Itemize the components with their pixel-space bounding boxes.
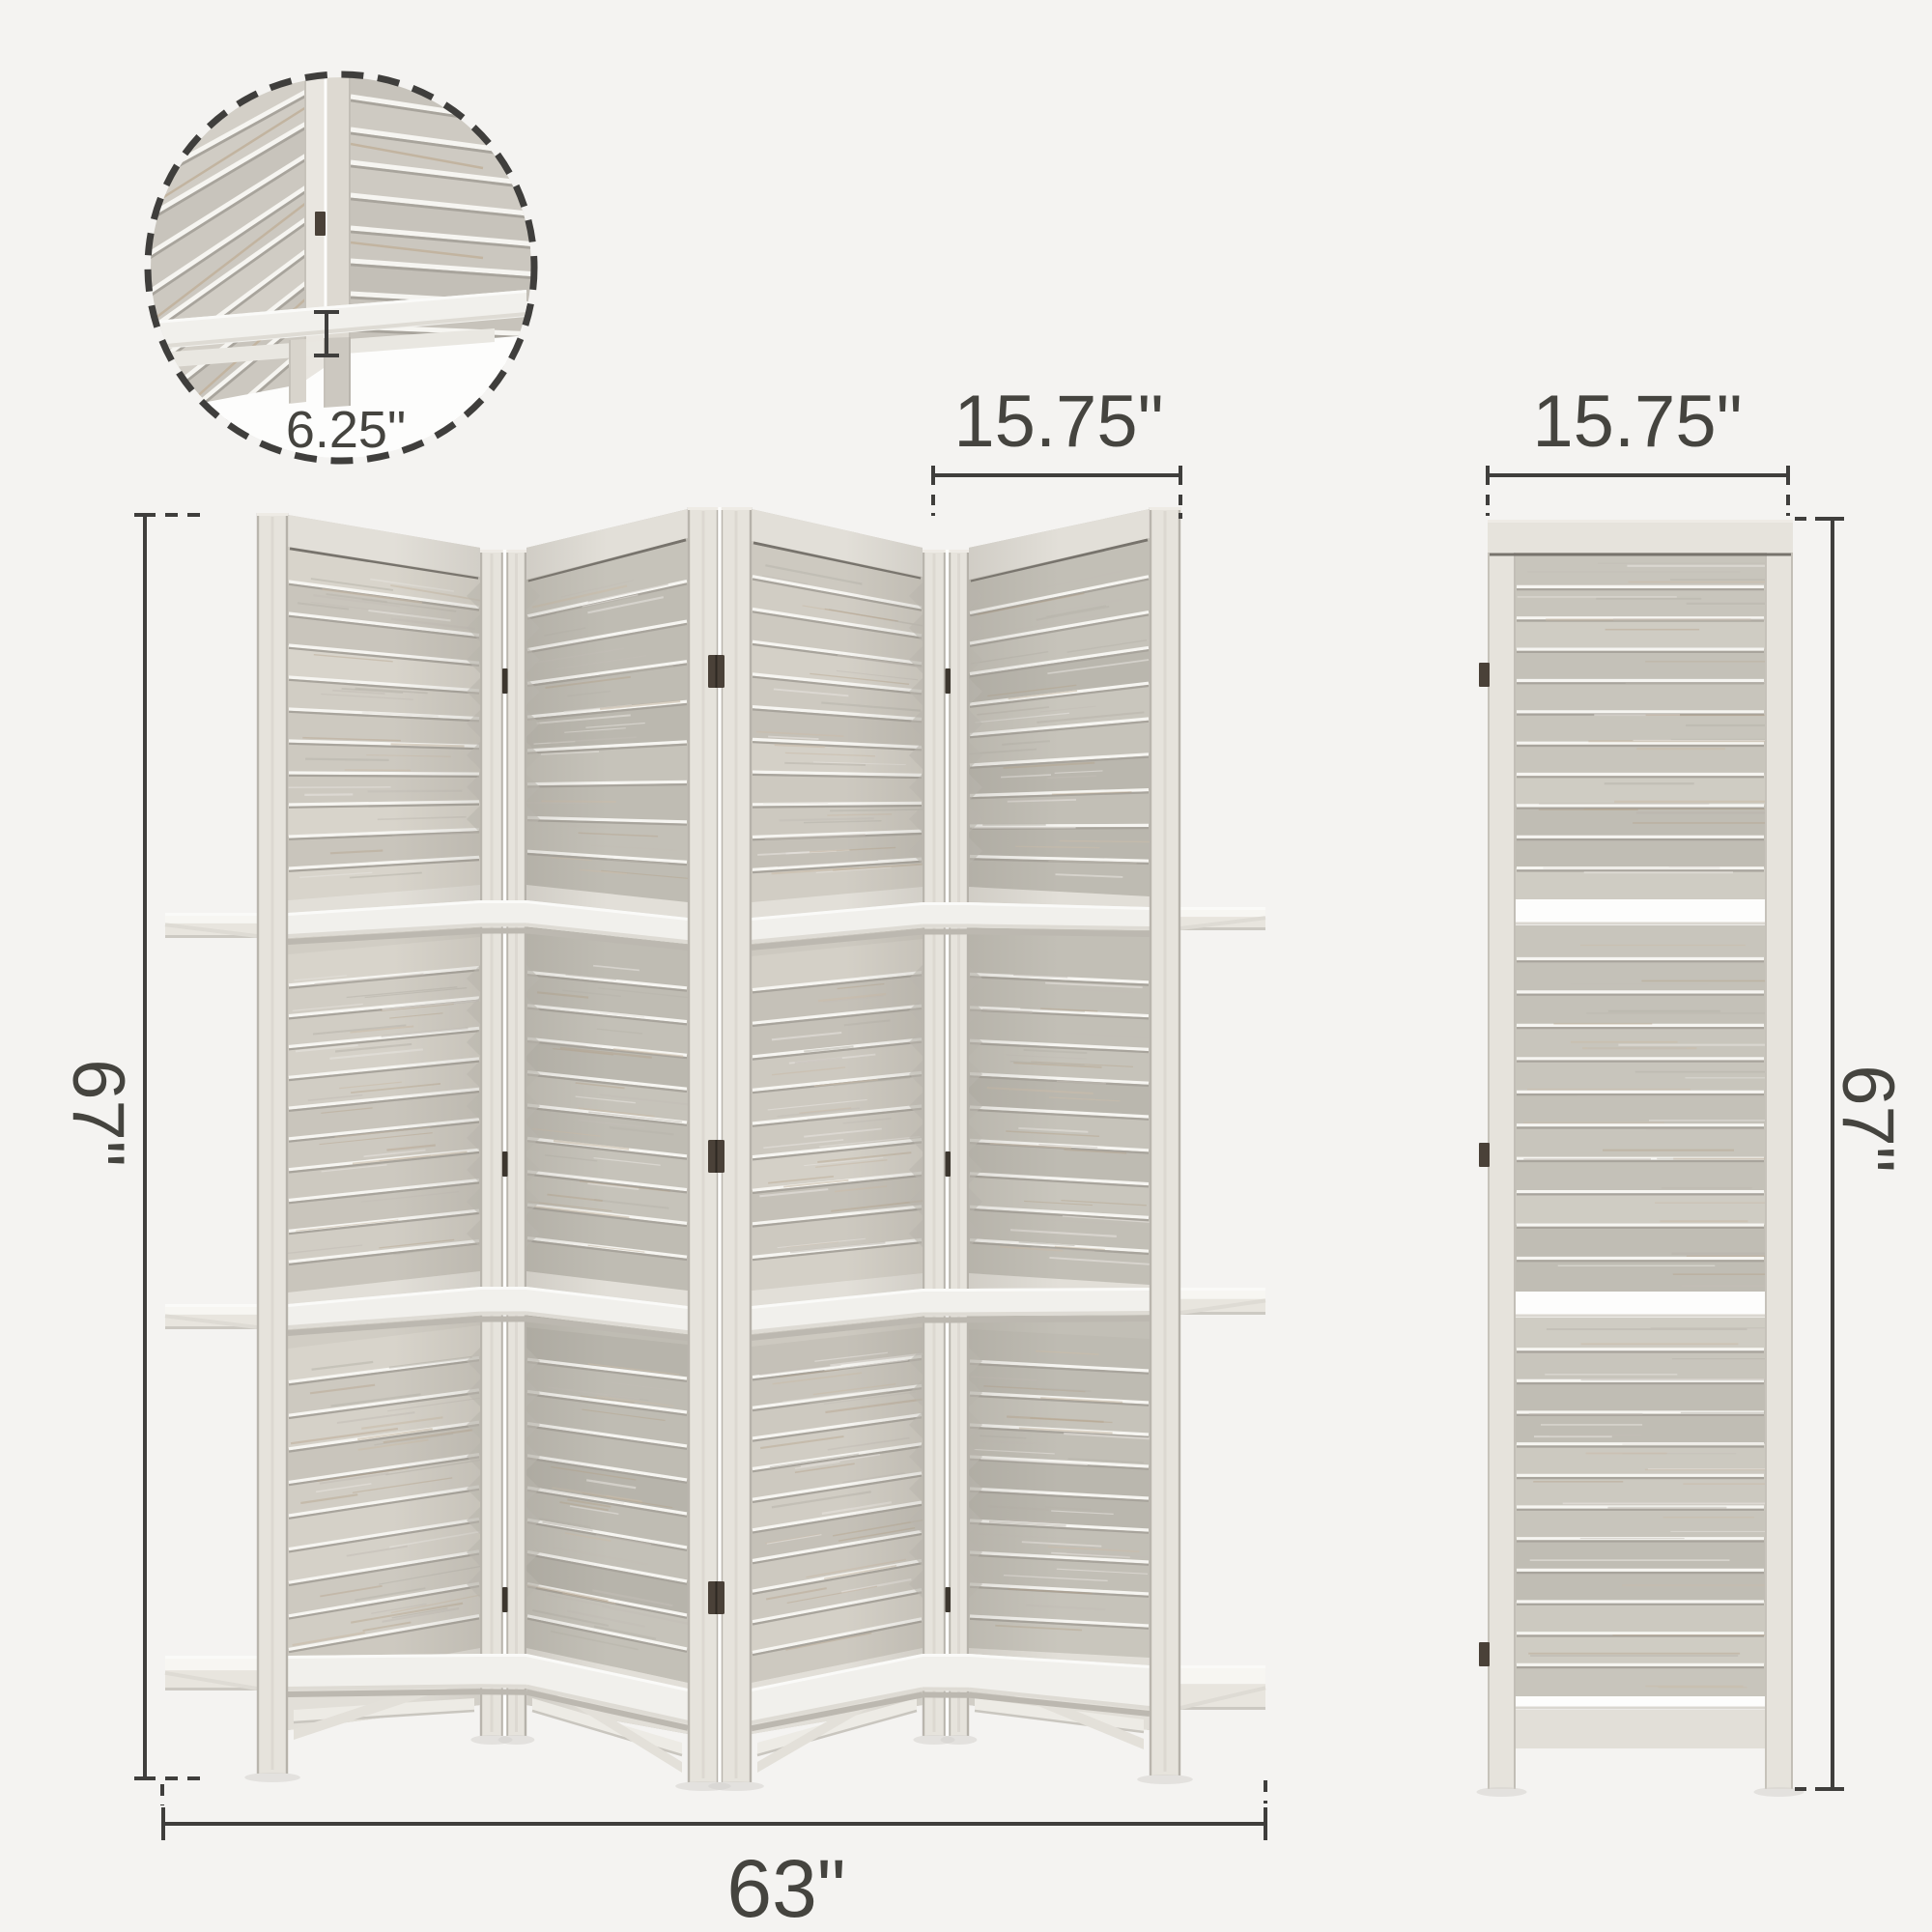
svg-text:63": 63" [726, 1843, 845, 1932]
svg-text:15.75": 15.75" [953, 381, 1163, 463]
svg-text:15.75": 15.75" [1532, 381, 1742, 463]
svg-text:67": 67" [57, 1059, 139, 1167]
svg-text:67": 67" [1827, 1065, 1909, 1173]
svg-text:6.25": 6.25" [286, 401, 406, 459]
